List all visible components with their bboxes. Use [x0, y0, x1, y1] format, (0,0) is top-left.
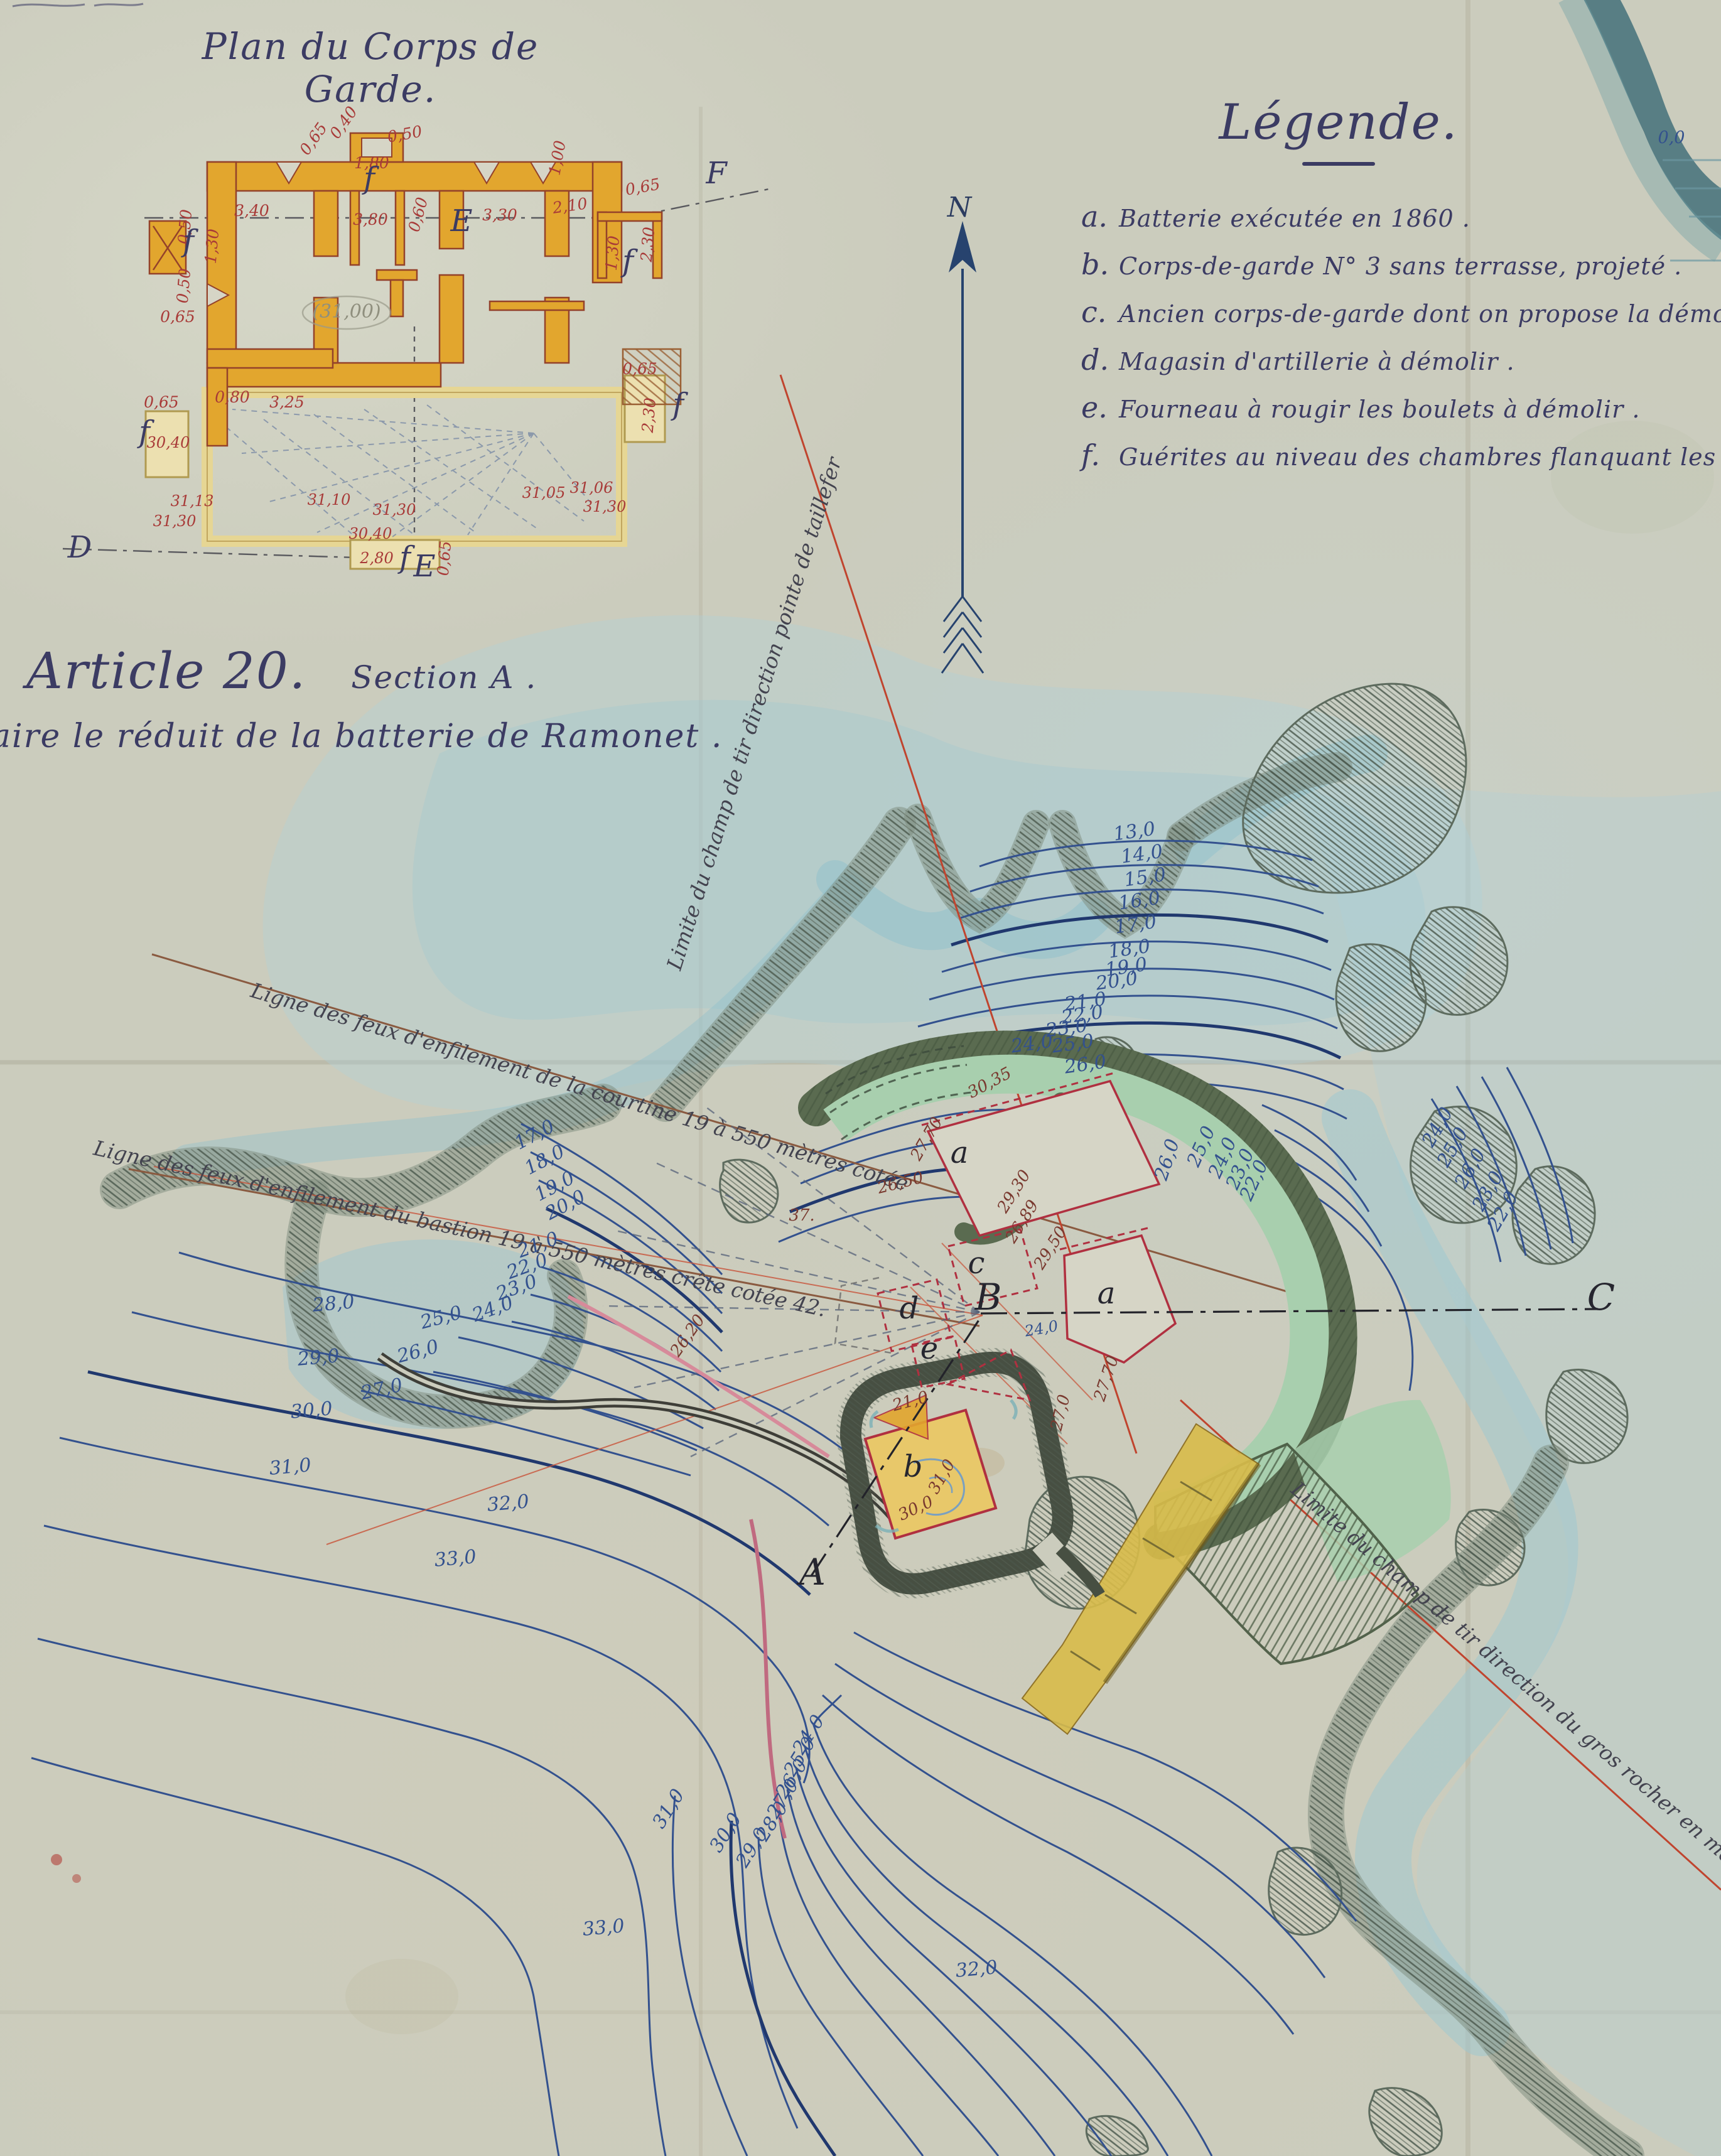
plan-dimension: 0,65 [434, 540, 455, 576]
plan-elevation: 31,05 [522, 484, 566, 502]
plan-dimension: 0,65 [160, 308, 195, 326]
legend-item-text: Magasin d'artillerie à démolir . [1119, 348, 1515, 375]
section-letter: B [974, 1276, 1002, 1318]
legend-item-text: Guérites au niveau des chambres flanquan… [1119, 443, 1721, 471]
plan-dimension: 3,30 [482, 206, 517, 224]
corps-de-garde-b [851, 1350, 1100, 1595]
plan-elevation: 31,13 [171, 492, 214, 510]
article-number: Article 20. [26, 642, 306, 700]
plan-letter: F [705, 156, 728, 191]
plan-dimension: 0,65 [296, 119, 331, 158]
legend-item-text: Ancien corps-de-garde dont on propose la… [1119, 300, 1721, 328]
contour-label: 33,0 [581, 1915, 625, 1941]
plan-dimension: 0,65 [622, 360, 657, 378]
plan-dimension: 3,80 [353, 210, 388, 229]
small-contour-labels: 24,0 [1023, 1317, 1059, 1340]
plan-title: Plan du Corps de Garde. [144, 25, 596, 110]
legend-item-key: c. [1081, 295, 1119, 329]
plan-dimension: 1,30 [602, 235, 623, 271]
feature-letter: e [920, 1331, 938, 1366]
scanned-map-page: N [0, 0, 1721, 2156]
legend-block: Légende. a.Batterie exécutée en 1860 . b… [1081, 94, 1715, 486]
contour-label: 29,0 [296, 1345, 340, 1371]
legend-item-key: d. [1081, 343, 1119, 377]
plan-dimension: 3,25 [269, 393, 305, 411]
legend-item-key: a. [1081, 200, 1119, 234]
legend-item-text: Batterie exécutée en 1860 . [1119, 205, 1470, 232]
plan-letter: f [671, 387, 688, 422]
contour-label: 33,0 [433, 1546, 477, 1571]
legend-items: a.Batterie exécutée en 1860 . b.Corps-de… [1081, 200, 1715, 486]
contour-label-small: 24,0 [1023, 1317, 1059, 1340]
legend-item: f.Guérites au niveau des chambres flanqu… [1081, 438, 1715, 486]
article-section: Section A . [351, 659, 537, 696]
contour-label: 32,0 [486, 1490, 530, 1516]
section-letter: A [796, 1551, 826, 1593]
legend-item: d.Magasin d'artillerie à démolir . [1081, 343, 1715, 391]
plan-dimension: 0,65 [144, 393, 179, 411]
plan-letter: D [67, 530, 92, 565]
plan-elevation: 31,30 [373, 501, 416, 519]
legend-item-text: Corps-de-garde N° 3 sans terrasse, proje… [1119, 252, 1682, 280]
feature-letter: a [951, 1135, 969, 1170]
plan-elevation: 31,06 [570, 479, 613, 497]
contour-label: 31,0 [648, 1785, 689, 1832]
plan-elevation: 31,30 [153, 512, 197, 530]
pencil-note: (31,00) [312, 301, 380, 323]
spot-height: 37. [789, 1206, 814, 1225]
plan-elevation: 2,80 [359, 549, 393, 567]
legend-item-key: f. [1081, 438, 1119, 472]
legend-item-key: e. [1081, 391, 1119, 424]
plan-dimension: 3,40 [234, 202, 269, 220]
plan-letter: f [620, 244, 638, 279]
plan-letter: E [413, 549, 435, 584]
plan-pencil: (31,00) [312, 301, 380, 323]
plan-letter: f [181, 224, 198, 259]
contour-label: 32,0 [954, 1956, 998, 1982]
north-label: N [947, 191, 973, 224]
plan-dimension: 0,80 [215, 388, 250, 406]
contour-label: 28,0 [311, 1291, 355, 1317]
section-letter: C [1587, 1276, 1615, 1318]
plan-elevation: 30,40 [147, 434, 190, 451]
feature-letter: c [968, 1246, 985, 1281]
legend-item: a.Batterie exécutée en 1860 . [1081, 200, 1715, 247]
legend-item: b.Corps-de-garde N° 3 sans terrasse, pro… [1081, 247, 1715, 295]
sea-washes [188, 615, 1721, 2156]
plan-dimension: 2,30 [639, 397, 660, 434]
plan-dimension: 0,50 [386, 122, 424, 146]
plan-dimension: 2,30 [637, 226, 659, 263]
plan-elevation: 31,30 [583, 498, 627, 515]
feature-letter: d [900, 1291, 919, 1326]
feature-letter: a [1098, 1276, 1116, 1311]
plan-elevation: 30,40 [349, 525, 392, 542]
article-block: Article 20. Section A . aire le réduit d… [0, 642, 691, 755]
plan-dimension: 0,60 [405, 195, 431, 234]
plan-letter: E [450, 203, 472, 239]
plan-elevation: 31,10 [308, 491, 351, 509]
article-subject: aire le réduit de la batterie de Ramonet… [0, 718, 691, 755]
contour-label: 26,0 [1150, 1136, 1184, 1183]
contour-label: 31,0 [268, 1454, 312, 1480]
legend-item: c.Ancien corps-de-garde dont on propose … [1081, 295, 1715, 343]
legend-item: e.Fourneau à rougir les boulets à démoli… [1081, 391, 1715, 438]
legend-item-text: Fourneau à rougir les boulets à démolir … [1119, 396, 1640, 423]
plan-dimension: 1,30 [202, 228, 223, 264]
plan-dimension: 0,50 [173, 267, 195, 304]
legend-item-key: b. [1081, 247, 1119, 281]
legend-title-underline [1302, 162, 1375, 166]
north-arrow: N [942, 191, 983, 673]
legend-title: Légende. [1163, 94, 1514, 151]
feature-letter: b [904, 1449, 923, 1484]
plan-dimension: 0,65 [624, 175, 662, 199]
contour-label: 30,0 [289, 1398, 333, 1423]
